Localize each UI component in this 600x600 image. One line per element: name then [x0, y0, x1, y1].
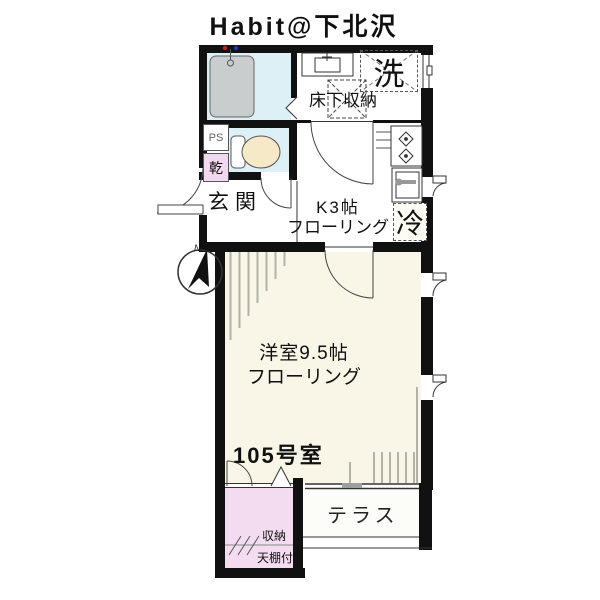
entrance-label: 玄関 — [208, 186, 262, 216]
dryer-label: 乾 — [203, 153, 229, 182]
kitchen-counter-icon — [376, 132, 391, 148]
floor-plan: Habit@下北沢 PS 乾 洗 床下収納 玄関 K3帖 フローリング 冷 洋室… — [0, 0, 600, 600]
fridge-label: 冷 — [393, 203, 427, 241]
main-room-size-label: 洋室9.5帖 — [240, 338, 368, 365]
kitchen-sink-icon — [392, 168, 422, 202]
washbasin-icon — [302, 53, 353, 76]
stove-icon — [391, 126, 422, 166]
north-label: N — [194, 243, 201, 253]
entry-door-leaf — [158, 205, 203, 214]
main-room-flooring-label: フローリング — [240, 362, 368, 389]
room-number-label: 105号室 — [233, 438, 324, 470]
bathtub-icon — [210, 46, 254, 117]
toilet-icon — [231, 136, 280, 168]
underfloor-storage-label: 床下収納 — [300, 86, 386, 111]
terrace-label: テラス — [327, 499, 399, 528]
plan-title: Habit@下北沢 — [178, 7, 430, 43]
closet-shelf-note-label: 天棚付 — [257, 549, 293, 566]
closet-label: 収納 — [262, 527, 286, 544]
north-arrow-icon — [188, 249, 209, 289]
kitchen-flooring-label: フローリング — [278, 213, 398, 238]
sliding-door-handle — [342, 483, 362, 488]
pipe-space-label: PS — [203, 124, 229, 151]
